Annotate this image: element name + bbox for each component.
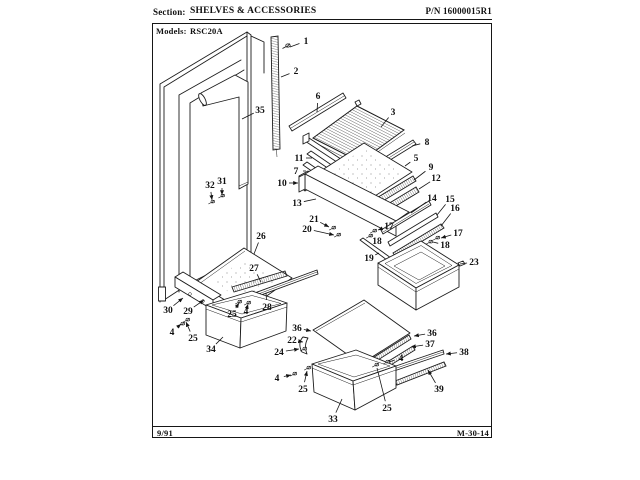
callout-label-16: 16 (450, 204, 460, 214)
callout-leader-13 (304, 199, 316, 202)
crisper-drawer-right (378, 241, 465, 310)
callout-leader-25 (186, 322, 190, 332)
callout-label-4: 4 (275, 374, 280, 384)
callout-leader-38 (446, 353, 457, 354)
callout-leader-2 (281, 74, 290, 77)
callout-label-32: 32 (205, 181, 215, 191)
callout-label-19: 19 (364, 254, 374, 264)
callout-label-17: 17 (384, 222, 394, 232)
callout-label-4: 4 (170, 328, 175, 338)
callout-label-1: 1 (304, 37, 309, 47)
callout-label-8: 8 (425, 138, 430, 148)
callout-label-37: 37 (425, 340, 435, 350)
callout-label-31: 31 (217, 177, 227, 187)
screw-icon (283, 44, 291, 49)
callout-label-25: 25 (227, 310, 237, 320)
callout-label-39: 39 (434, 385, 444, 395)
callout-leader-20 (314, 231, 334, 235)
callout-label-18: 18 (440, 241, 450, 251)
callout-leader-18 (433, 242, 438, 243)
callout-label-22: 22 (287, 336, 297, 346)
callout-leader-30 (173, 298, 183, 306)
callout-label-38: 38 (459, 348, 469, 358)
callout-label-35: 35 (255, 106, 265, 116)
callout-label-36: 36 (427, 329, 437, 339)
callout-leader-9 (414, 171, 425, 180)
callout-leader-28 (266, 293, 267, 300)
callout-label-25: 25 (382, 404, 392, 414)
callout-label-29: 29 (183, 307, 193, 317)
callout-leader-16 (441, 214, 451, 226)
callout-leader-15 (437, 204, 446, 215)
callout-label-12: 12 (431, 174, 441, 184)
callout-label-33: 33 (328, 415, 338, 425)
callout-label-7: 7 (294, 167, 299, 177)
callout-label-17: 17 (453, 229, 463, 239)
callout-label-10: 10 (277, 179, 287, 189)
callout-label-4: 4 (244, 307, 249, 317)
callout-label-20: 20 (302, 225, 312, 235)
crisper-drawer-bottom (312, 350, 396, 410)
callout-leader-21 (320, 222, 329, 227)
callout-label-34: 34 (206, 345, 216, 355)
callout-leader-12 (419, 182, 430, 189)
callout-leader-24 (286, 349, 299, 351)
callout-label-14: 14 (427, 194, 437, 204)
callout-leader-17 (441, 235, 451, 238)
callout-leader-36 (414, 334, 425, 336)
callout-leader-4 (284, 375, 291, 377)
callout-label-30: 30 (163, 306, 173, 316)
callout-label-25: 25 (298, 385, 308, 395)
air-duct (197, 75, 248, 189)
callout-label-6: 6 (316, 92, 321, 102)
callout-label-9: 9 (429, 163, 434, 173)
callout-label-26: 26 (256, 232, 266, 242)
callout-label-27: 27 (249, 264, 259, 274)
exploded-view-diagram: 1235638117105912131415162120171817181923… (0, 0, 640, 480)
callout-label-28: 28 (262, 303, 272, 313)
crisper-drawer-left (206, 291, 287, 348)
callout-label-23: 23 (469, 258, 479, 268)
door-trim-strip (271, 36, 280, 157)
callout-leader-5 (405, 162, 410, 166)
callout-label-5: 5 (414, 154, 419, 164)
callout-label-18: 18 (372, 237, 382, 247)
callout-label-21: 21 (309, 215, 319, 225)
callout-leader-25 (305, 371, 307, 382)
callout-label-36: 36 (292, 324, 302, 334)
callout-leader-6 (317, 103, 318, 112)
callout-label-4: 4 (399, 354, 404, 364)
callout-label-25: 25 (188, 334, 198, 344)
callout-label-13: 13 (292, 199, 302, 209)
callout-label-24: 24 (274, 348, 284, 358)
callout-label-3: 3 (391, 108, 396, 118)
callout-label-11: 11 (295, 154, 304, 164)
callout-label-2: 2 (294, 67, 299, 77)
callout-leader-1 (290, 43, 299, 47)
callout-leader-32 (211, 192, 212, 200)
callout-leader-26 (254, 243, 258, 254)
callout-leader-4 (177, 324, 181, 327)
parts-catalog-page: Section: SHELVES & ACCESSORIES P/N 16000… (0, 0, 640, 480)
callout-leader-36 (304, 329, 311, 331)
